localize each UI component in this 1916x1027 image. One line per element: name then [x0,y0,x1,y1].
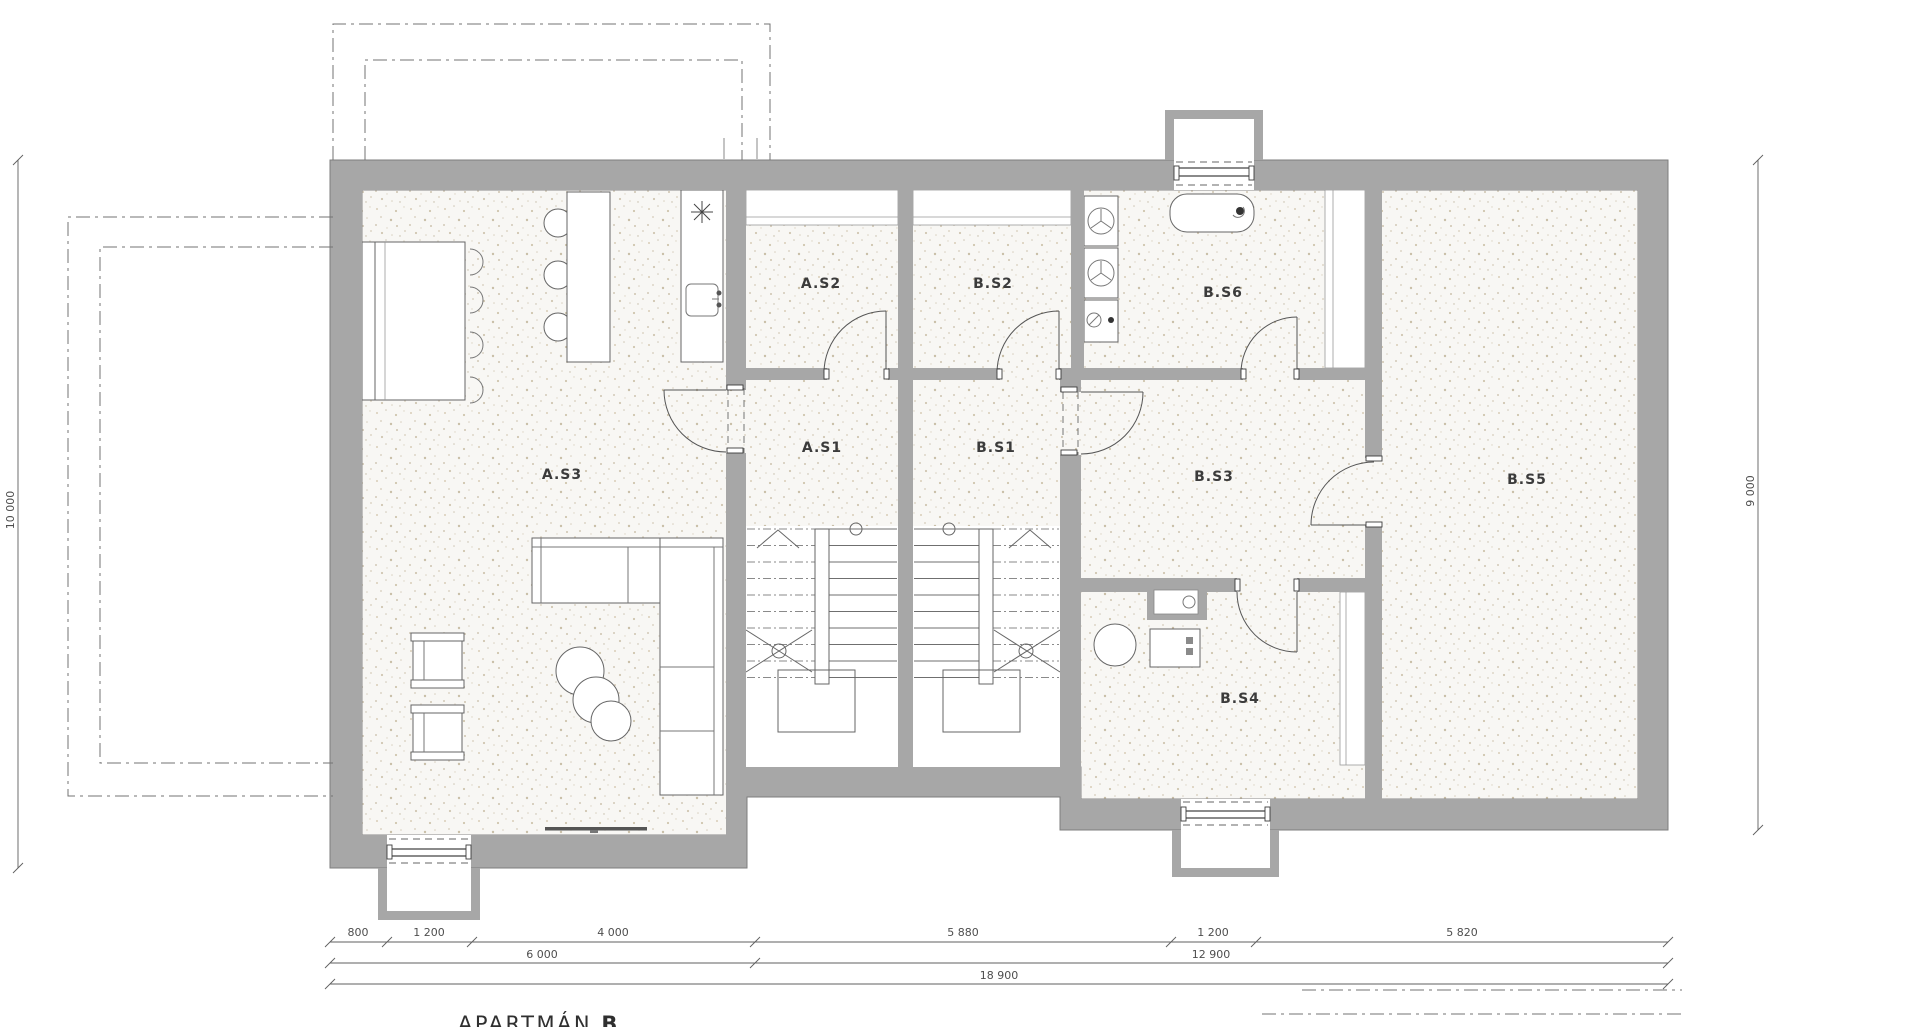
room-label-bs6: B.S6 [1203,285,1243,301]
cabinet-icon [1150,629,1200,667]
room-label-bs4: B.S4 [1220,691,1260,707]
room-label-as2: A.S2 [801,276,841,292]
dim-right-9000: 9 000 [1744,475,1757,507]
cooktop-icon [691,201,713,223]
dim-12900: 12 900 [1192,948,1231,961]
dim-1200b: 1 200 [1197,926,1229,939]
kitchen-island-icon [567,192,610,362]
room-label-bs1: B.S1 [976,440,1016,456]
dim-800: 800 [348,926,369,939]
wardrobe-bs4 [1340,592,1365,765]
dim-5880: 5 880 [947,926,979,939]
dim-4000: 4 000 [597,926,629,939]
room-label-bs2: B.S2 [973,276,1013,292]
wardrobe-bs2 [913,190,1071,225]
dim-1200a: 1 200 [413,926,445,939]
dim-18900: 18 900 [980,969,1019,982]
room-label-bs5: B.S5 [1507,472,1547,488]
room-label-as3: A.S3 [542,467,582,483]
floor-plan-page: 800 1 200 4 000 5 880 1 200 5 820 6 000 … [0,0,1916,1027]
page-title: APARTMÁN B [458,1011,620,1027]
dim-6000: 6 000 [526,948,558,961]
niche-sink-icon [1154,590,1198,614]
floor-plan-svg: 800 1 200 4 000 5 880 1 200 5 820 6 000 … [0,0,1916,1027]
bathtub-icon [1170,194,1254,232]
round-table-icon [1094,624,1136,666]
room-label-as1: A.S1 [802,440,842,456]
kitchen-counter [681,190,723,362]
wardrobe-as2 [746,190,898,225]
dining-table-icon [362,242,465,400]
dim-5820: 5 820 [1446,926,1478,939]
closet-bs6 [1325,190,1365,368]
washing-machine-icon [1084,196,1118,342]
dim-left-10000: 10 000 [4,491,17,530]
room-label-bs3: B.S3 [1194,469,1234,485]
reference-ticks [724,138,757,159]
